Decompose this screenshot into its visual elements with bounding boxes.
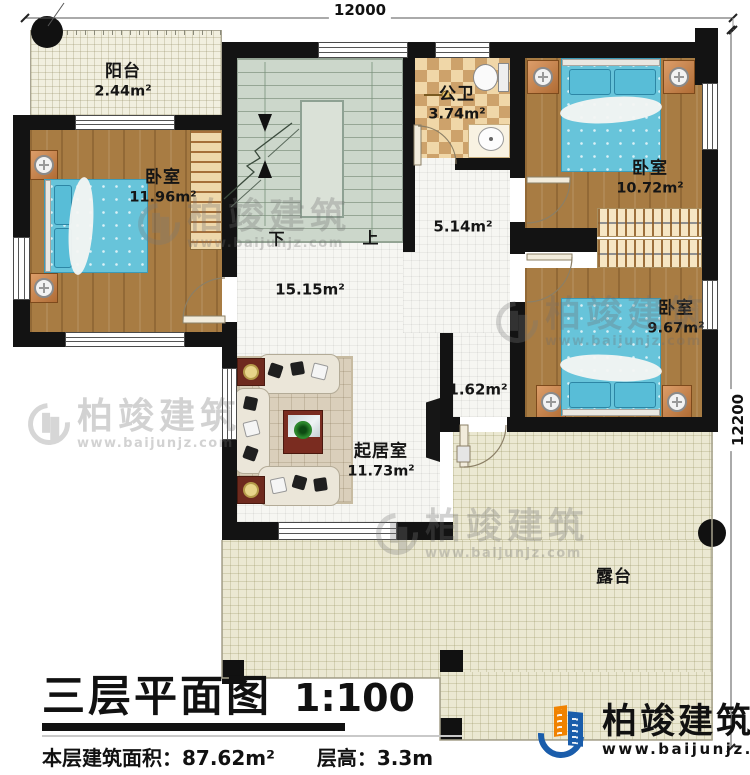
living-room-label: 起居室11.73m² xyxy=(347,441,414,482)
wall xyxy=(13,115,75,130)
headboard xyxy=(562,59,660,66)
headboard xyxy=(45,180,51,272)
logo-building-orange xyxy=(554,705,567,737)
bedroom-left-label: 卧室11.96m² xyxy=(129,167,196,208)
stair-landing xyxy=(300,100,344,218)
corridor-area-label: 5.14m² xyxy=(433,217,492,237)
column xyxy=(440,650,463,672)
stairs-up-label: 上 xyxy=(362,229,379,250)
floor-height-value: 3.3m xyxy=(377,746,433,770)
sink-basin xyxy=(478,127,504,151)
nightstand xyxy=(30,150,58,180)
brand-logo: 柏竣建筑 www.baijunjz.com xyxy=(538,700,750,762)
closet-row xyxy=(597,208,702,237)
watermark-logo-icon xyxy=(19,395,78,454)
wall xyxy=(507,417,525,432)
wall xyxy=(403,42,415,252)
closet-row xyxy=(597,239,702,268)
wall xyxy=(702,150,718,193)
floor-info: 本层建筑面积：87.62m²层高：3.3m xyxy=(42,742,433,771)
wall xyxy=(222,440,237,522)
wall xyxy=(222,347,237,368)
headboard xyxy=(562,409,660,416)
sofa-pillow xyxy=(270,477,288,495)
pillow xyxy=(614,69,656,95)
column-marker xyxy=(698,519,726,547)
brand-logo-icon xyxy=(538,700,592,762)
lamp-icon xyxy=(34,278,54,298)
lamp-icon xyxy=(669,67,689,87)
sofa-left xyxy=(234,388,270,474)
wall xyxy=(702,193,718,280)
bed-sheet xyxy=(559,93,663,126)
stairs-down-label: 下 xyxy=(268,230,285,251)
dimension-right: 12200 xyxy=(729,389,747,451)
terrace-label: 露台 xyxy=(596,566,632,588)
brand-url: www.baijunjz.com xyxy=(602,740,750,758)
floor-plan-canvas: 12000 12200 阳台2.44m² 卧室11.96m² 公卫3.74m² … xyxy=(0,0,750,775)
sofa-pillow xyxy=(242,419,260,437)
wall xyxy=(455,158,510,170)
wall xyxy=(440,417,460,432)
title-underline-thin xyxy=(42,735,462,737)
balcony-slider xyxy=(75,115,175,130)
watermark: 柏竣建筑www.baijunjz.com xyxy=(0,398,241,451)
terrace-lobby-floor xyxy=(453,333,510,417)
brand-name: 柏竣建筑 xyxy=(602,704,750,741)
hall-area-label: 15.15m² xyxy=(275,280,345,300)
window xyxy=(318,42,408,58)
bed-sheet xyxy=(559,351,663,384)
bathroom-label: 公卫3.74m² xyxy=(428,84,485,125)
bedroom-bottom-right-label: 卧室9.67m² xyxy=(647,298,704,339)
nightstand xyxy=(527,60,559,94)
tv-screen xyxy=(426,398,440,462)
terrace-floor-main xyxy=(222,540,713,678)
floor-area-value: 87.62m² xyxy=(182,746,275,770)
dimension-top: 12000 xyxy=(329,1,391,19)
sofa-pillow xyxy=(313,477,328,492)
wall xyxy=(525,417,718,432)
bed-bottom-right xyxy=(561,298,661,416)
corridor-floor xyxy=(403,158,510,333)
pillow xyxy=(569,382,611,408)
floor-area-label: 本层建筑面积： xyxy=(42,746,182,770)
sofa-bottom xyxy=(258,466,340,506)
lamp-icon xyxy=(667,392,687,412)
coffee-table xyxy=(283,410,323,454)
window xyxy=(65,332,185,347)
pillow xyxy=(569,69,611,95)
nightstand xyxy=(663,60,695,94)
page-title: 三层平面图 xyxy=(42,662,272,724)
toilet-tank xyxy=(498,63,509,92)
end-table xyxy=(237,476,265,504)
wall xyxy=(510,222,525,254)
table-lamp-icon xyxy=(243,364,259,380)
terrace-lobby-area-label: 1.62m² xyxy=(448,380,507,400)
window xyxy=(222,368,237,440)
title-block: 三层平面图 1:100 xyxy=(42,662,415,724)
watermark-url-text: www.baijunjz.com xyxy=(77,436,241,451)
bedroom-top-right-label: 卧室10.72m² xyxy=(616,158,683,199)
wall xyxy=(222,42,237,277)
sofa-top xyxy=(258,354,340,394)
nightstand xyxy=(662,385,692,418)
scale-label: 1:100 xyxy=(294,676,415,720)
wall xyxy=(510,302,525,432)
wall xyxy=(13,115,30,237)
wall xyxy=(13,332,65,347)
sofa-pillow xyxy=(242,445,259,462)
column-marker xyxy=(31,16,63,48)
watermark-brand-text: 柏竣建筑 xyxy=(77,398,241,436)
lamp-icon xyxy=(533,67,553,87)
wall xyxy=(525,228,597,252)
sofa-pillow xyxy=(267,362,283,378)
pillow xyxy=(614,382,656,408)
wall xyxy=(702,42,718,83)
wall xyxy=(510,42,525,178)
balcony-label: 阳台2.44m² xyxy=(94,61,151,102)
floor-height-label: 层高： xyxy=(317,746,377,770)
window xyxy=(435,42,490,58)
sofa-pillow xyxy=(310,362,328,380)
sofa-pillow xyxy=(291,474,307,490)
wall xyxy=(397,522,453,540)
plant-icon xyxy=(294,421,312,439)
title-underline xyxy=(42,723,345,731)
bed-top-right xyxy=(561,58,661,172)
wall xyxy=(185,332,237,347)
terrace-floor-right xyxy=(453,432,713,540)
window xyxy=(278,522,397,540)
sofa-pillow xyxy=(290,361,305,376)
table-lamp-icon xyxy=(243,482,259,498)
window xyxy=(702,83,718,150)
lamp-icon xyxy=(34,155,54,175)
lamp-icon xyxy=(541,392,561,412)
sofa-pillow xyxy=(243,396,258,411)
end-table xyxy=(237,358,265,386)
wall xyxy=(222,522,278,540)
nightstand xyxy=(30,273,58,303)
wall xyxy=(440,333,453,417)
logo-building-blue xyxy=(568,711,583,747)
window xyxy=(13,237,30,300)
